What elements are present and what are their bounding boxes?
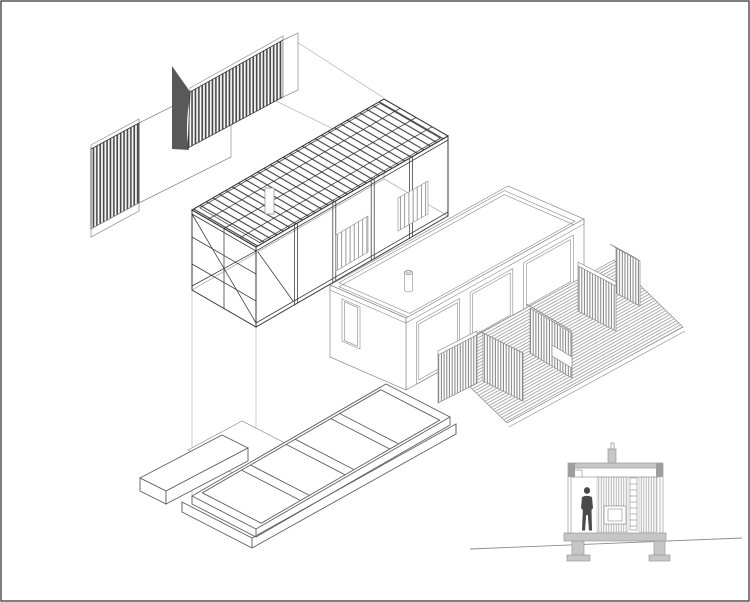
architectural-drawing: [0, 0, 750, 602]
flue-stub: [611, 443, 614, 449]
roof-slab: [568, 463, 663, 468]
floor-slab: [564, 533, 666, 541]
section-chimney: [608, 449, 616, 463]
roof-penetration: [265, 188, 274, 214]
parapet-block: [656, 463, 663, 477]
interior-wall-hatched: [639, 477, 657, 532]
drawing-sheet: [0, 0, 750, 602]
parapet-block: [568, 463, 575, 477]
